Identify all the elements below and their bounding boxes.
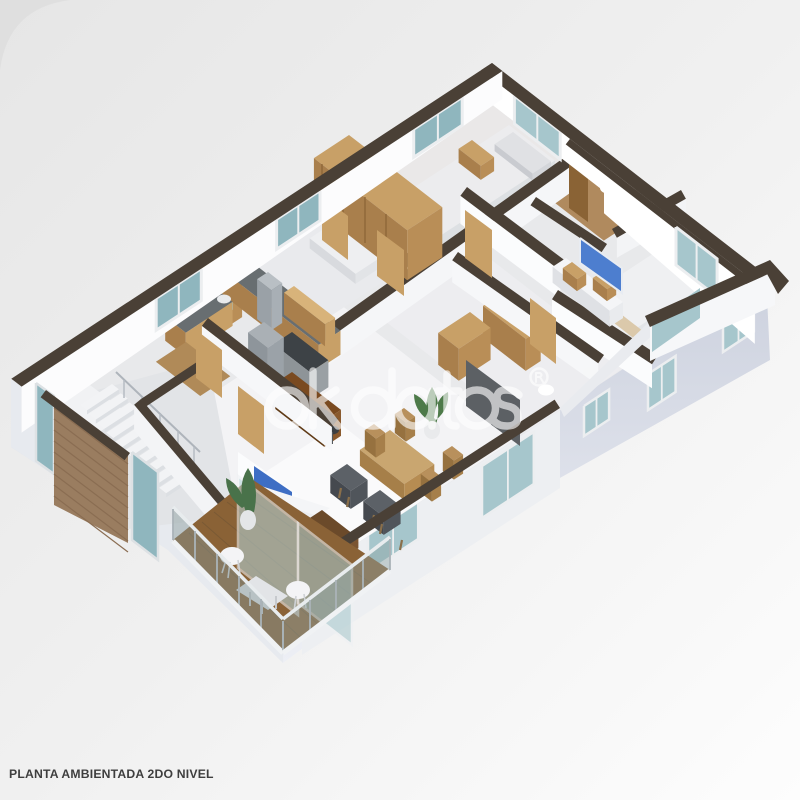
svg-text:PLANTA AMBIENTADA 2DO NIVEL: PLANTA AMBIENTADA 2DO NIVEL <box>9 767 214 781</box>
